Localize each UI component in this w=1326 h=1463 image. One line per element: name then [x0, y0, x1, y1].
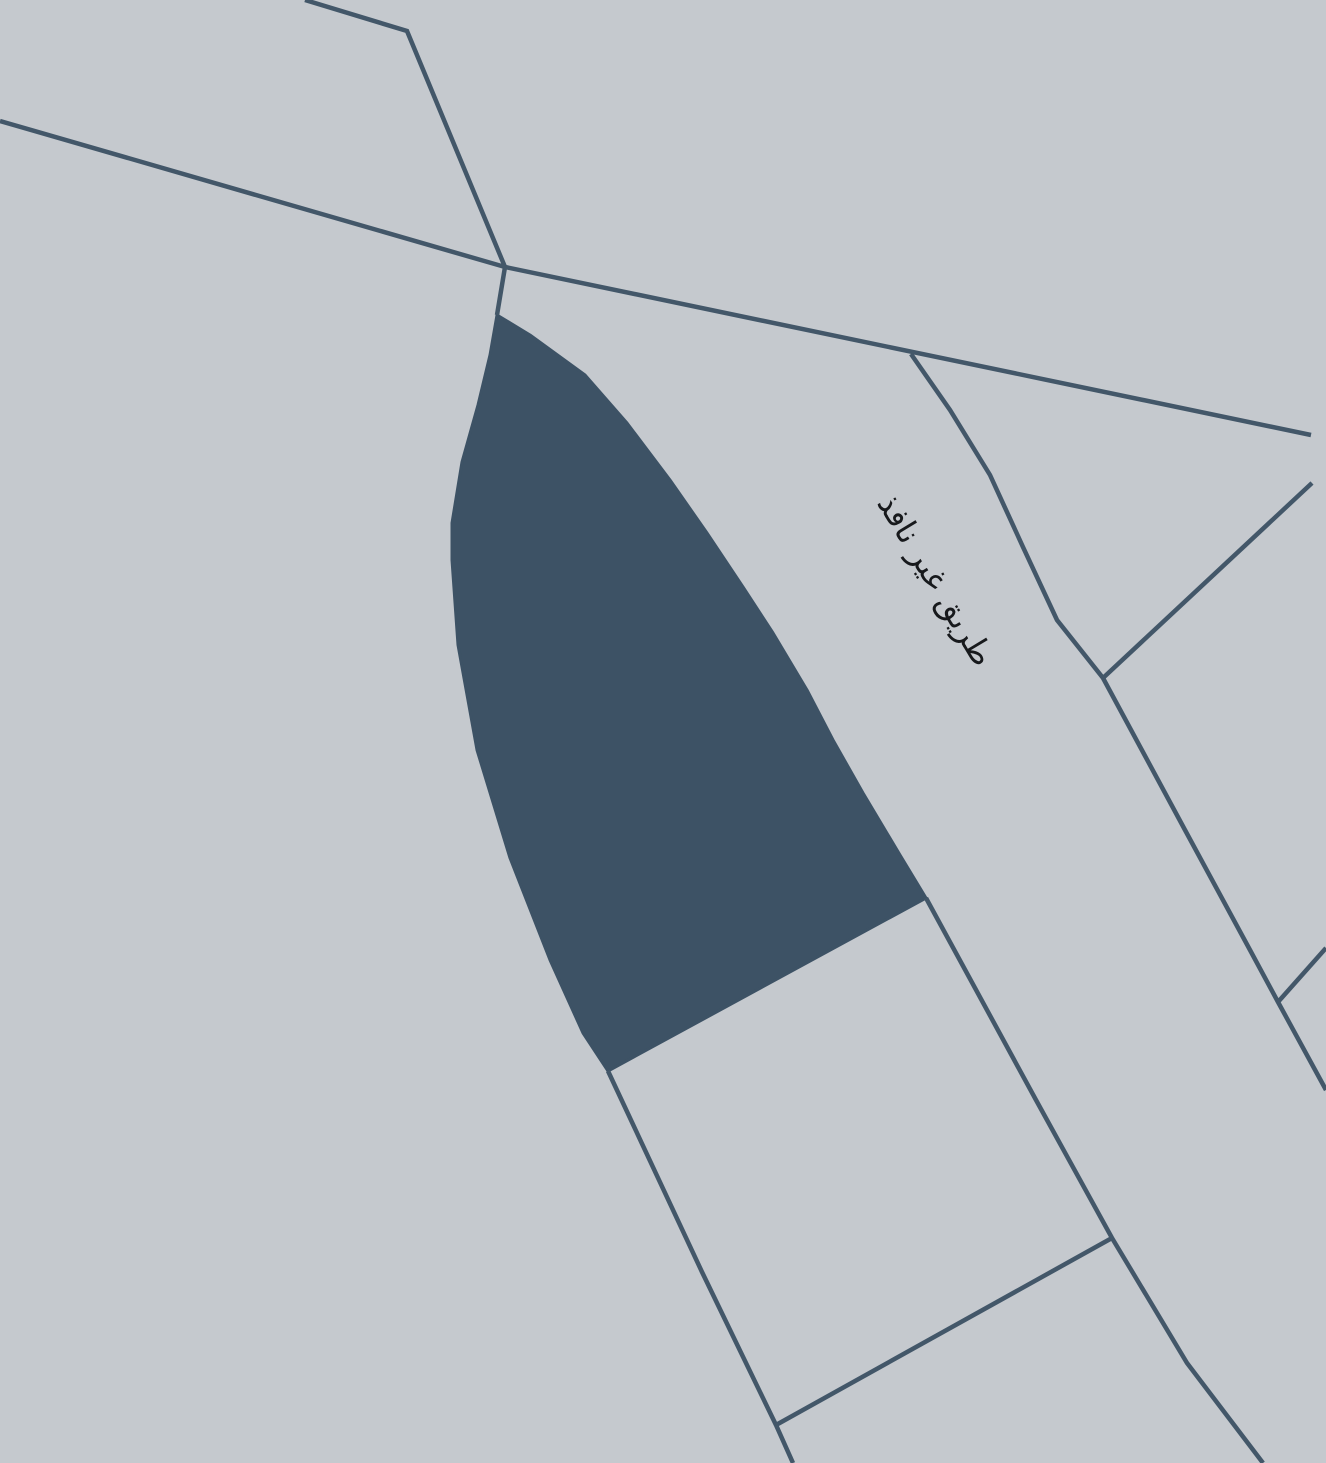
road-northeast-spur	[1103, 483, 1312, 678]
road-top-left	[305, 0, 505, 267]
map-viewport[interactable]: طريق غير نافذ	[0, 0, 1326, 1463]
selected-parcel-polygon[interactable]	[452, 315, 926, 1071]
map-canvas[interactable]	[0, 0, 1326, 1463]
road-dead-end-east	[911, 354, 1326, 1090]
road-east-spur	[1278, 948, 1326, 1002]
boundary-parcel-southeast	[926, 898, 1263, 1463]
road-parcel-tip-south	[608, 1071, 793, 1463]
boundary-south-cross	[776, 1238, 1112, 1425]
road-main-diagonal	[0, 121, 1311, 435]
road-junction-to-parcel	[497, 267, 505, 315]
